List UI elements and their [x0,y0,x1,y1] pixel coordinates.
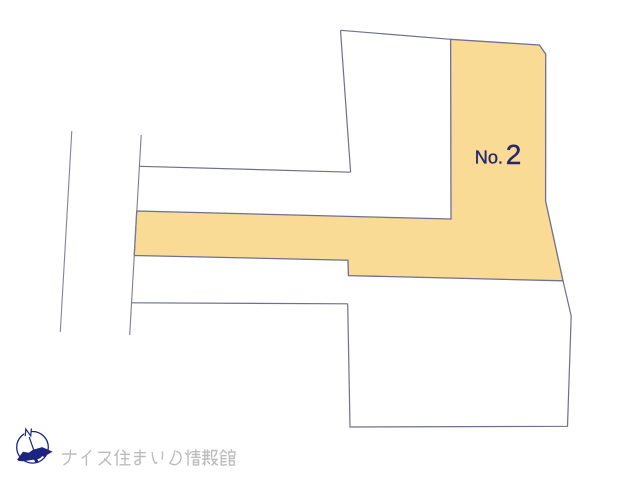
svg-text:2: 2 [506,139,522,170]
svg-text:No.: No. [475,148,503,168]
